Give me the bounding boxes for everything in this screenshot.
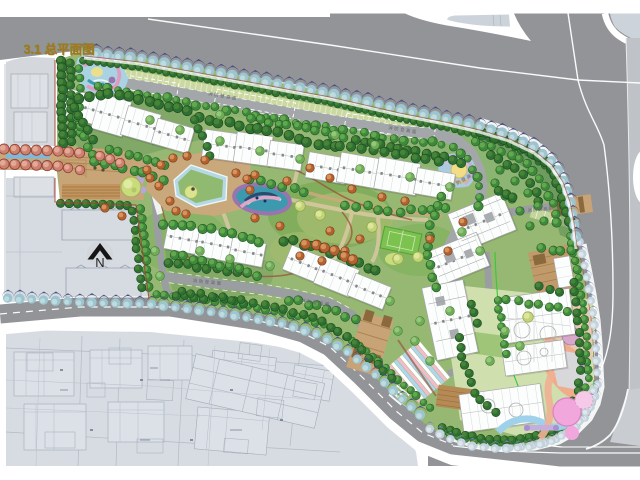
svg-text:N: N — [95, 255, 104, 270]
svg-text:3.1 总平面图: 3.1 总平面图 — [24, 42, 95, 57]
